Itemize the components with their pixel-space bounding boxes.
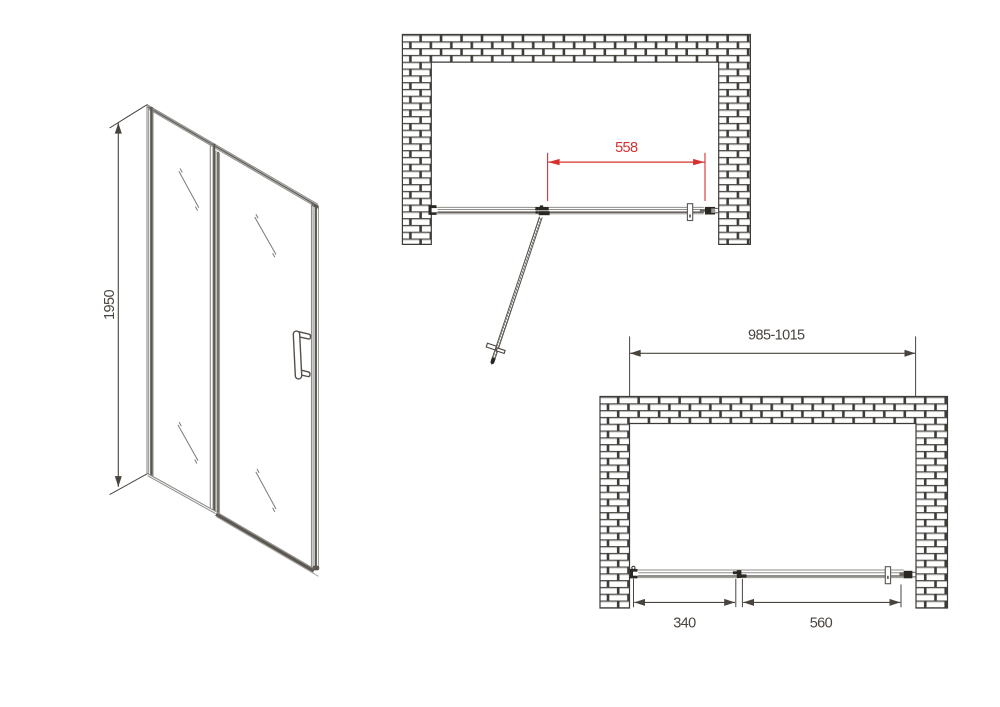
- svg-text:340: 340: [673, 616, 696, 632]
- svg-text:558: 558: [615, 140, 638, 156]
- svg-text:560: 560: [810, 616, 833, 632]
- svg-text:985-1015: 985-1015: [748, 328, 805, 344]
- svg-text:1950: 1950: [102, 290, 118, 320]
